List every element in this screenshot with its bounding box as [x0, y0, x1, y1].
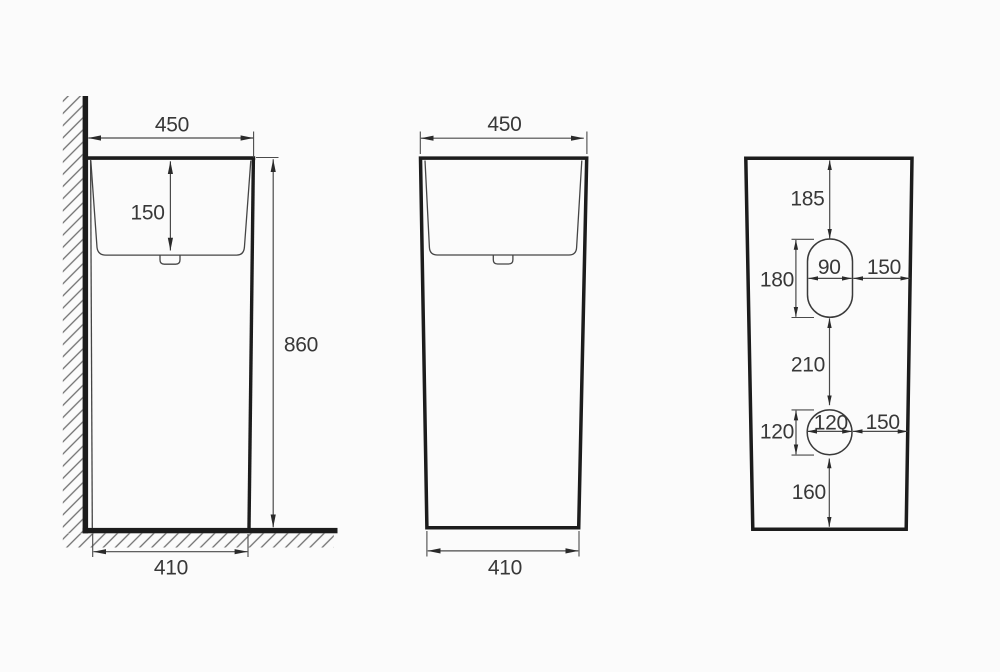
- svg-text:210: 210: [791, 354, 825, 377]
- svg-text:160: 160: [792, 481, 826, 504]
- svg-text:450: 450: [487, 113, 521, 136]
- svg-text:120: 120: [814, 412, 848, 435]
- svg-text:450: 450: [155, 114, 189, 137]
- svg-text:860: 860: [284, 334, 318, 357]
- svg-text:150: 150: [867, 256, 901, 279]
- svg-text:150: 150: [131, 202, 165, 225]
- svg-text:410: 410: [488, 557, 522, 580]
- svg-text:150: 150: [866, 411, 900, 434]
- svg-text:410: 410: [154, 557, 188, 580]
- svg-text:180: 180: [760, 269, 794, 292]
- svg-text:90: 90: [818, 256, 841, 279]
- svg-text:120: 120: [760, 421, 794, 444]
- svg-text:185: 185: [790, 188, 824, 211]
